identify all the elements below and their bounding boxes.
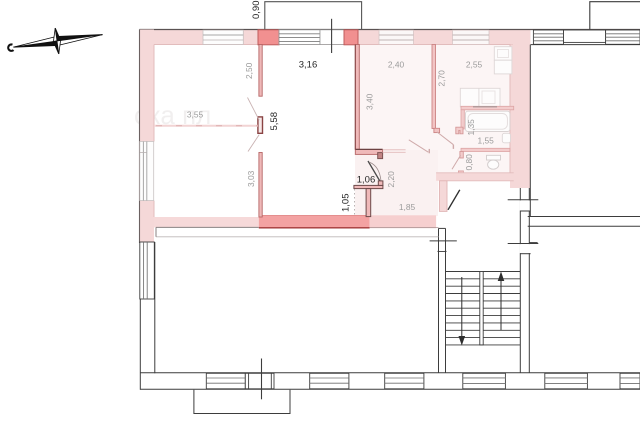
svg-text:3,16: 3,16: [299, 60, 318, 71]
svg-text:1,85: 1,85: [399, 202, 416, 212]
svg-text:0,80: 0,80: [464, 154, 474, 171]
svg-text:5,58: 5,58: [269, 112, 280, 131]
svg-text:3,40: 3,40: [365, 93, 375, 110]
svg-text:3,55: 3,55: [187, 110, 204, 120]
svg-text:3,03: 3,03: [246, 170, 256, 187]
svg-text:2,55: 2,55: [466, 60, 483, 70]
svg-text:1,55: 1,55: [478, 135, 495, 145]
svg-text:1,06: 1,06: [357, 175, 376, 186]
svg-text:2,20: 2,20: [386, 171, 396, 188]
svg-text:2,50: 2,50: [244, 62, 254, 79]
svg-text:2,70: 2,70: [437, 70, 447, 87]
svg-text:1,35: 1,35: [466, 119, 476, 136]
svg-text:0,90: 0,90: [251, 1, 262, 20]
svg-text:2,40: 2,40: [388, 60, 405, 70]
svg-text:1,05: 1,05: [341, 194, 352, 213]
